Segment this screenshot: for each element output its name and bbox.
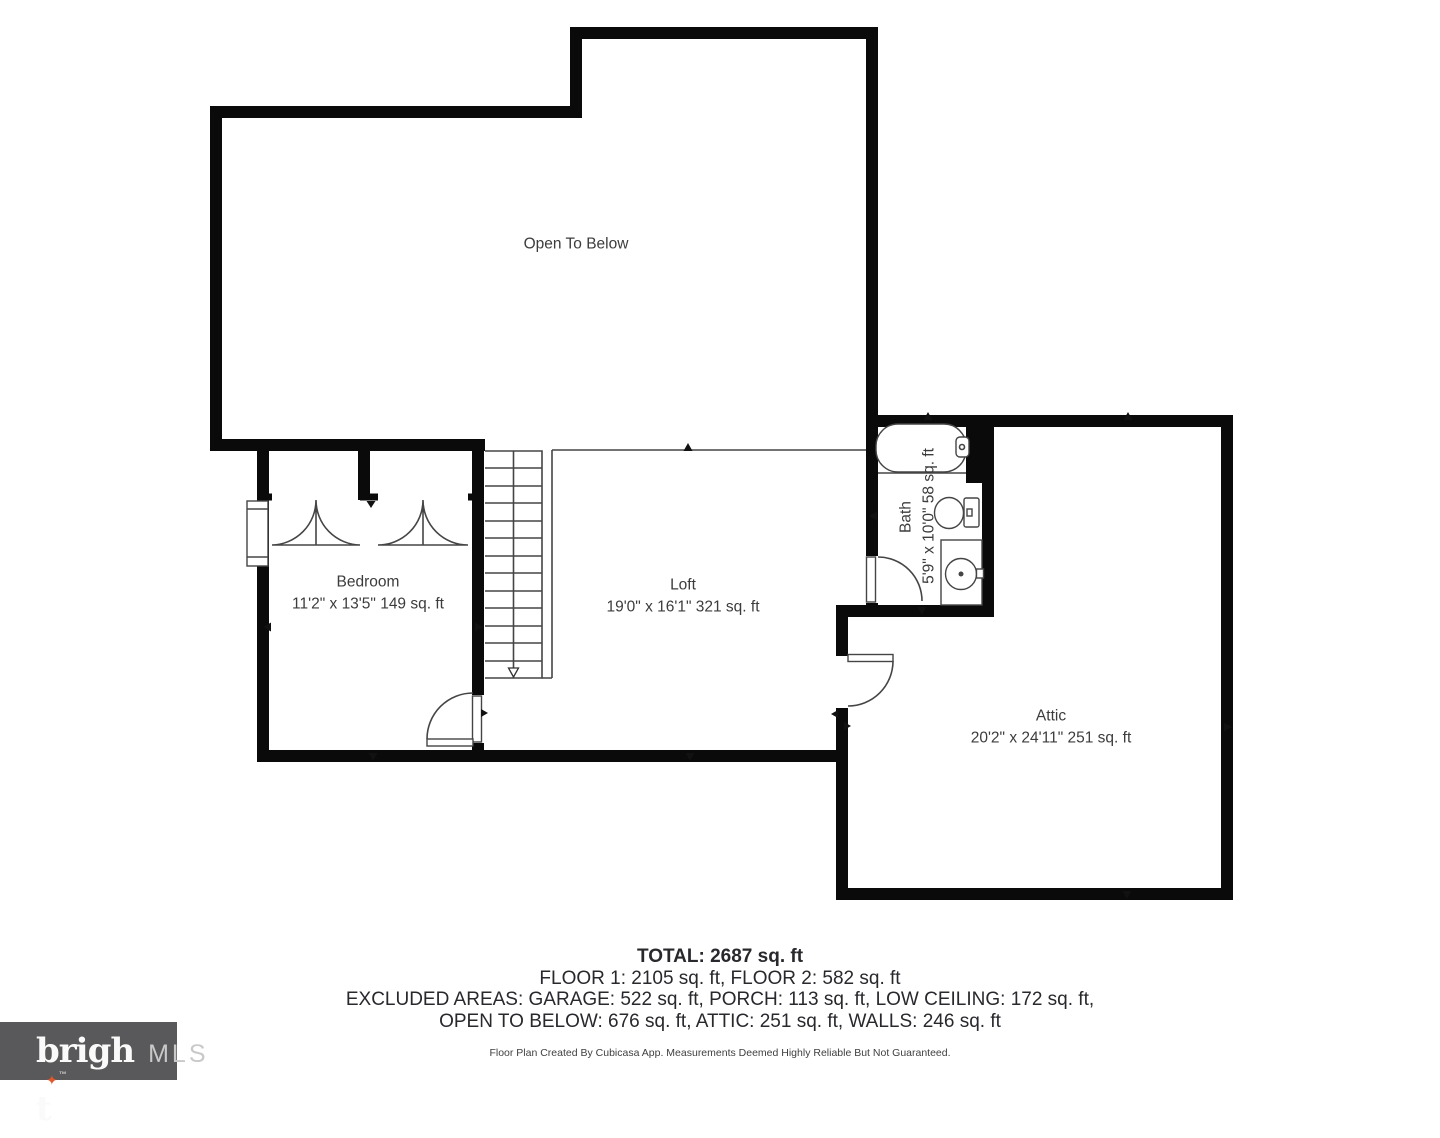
star-icon: ✦	[46, 1074, 58, 1088]
disclaimer-text: Floor Plan Created By Cubicasa App. Meas…	[0, 1047, 1440, 1059]
logo-suffix-text: MLS	[148, 1040, 208, 1069]
floor-plan-canvas: Open To Below Bedroom 11'2" x 13'5" 149 …	[0, 0, 1440, 1080]
arrow-down-icon	[367, 501, 376, 508]
closet-door-right-icon	[378, 500, 468, 545]
excluded-areas-text-line1: EXCLUDED AREAS: GARAGE: 522 sq. ft, PORC…	[0, 989, 1440, 1011]
walls	[210, 27, 1233, 900]
attic-door-opening	[834, 656, 848, 708]
bath-door-swing-icon	[878, 557, 922, 601]
bright-mls-logo: bright✦™ MLS	[0, 1022, 177, 1080]
bedroom-door-swing-icon	[427, 693, 473, 739]
bedroom-door-jamb	[473, 696, 482, 742]
attic-label: Attic	[1036, 708, 1066, 725]
room-labels: Open To Below Bedroom 11'2" x 13'5" 149 …	[292, 236, 1132, 747]
toilet-bowl-icon	[935, 498, 964, 529]
bath-label: Bath	[898, 501, 915, 533]
attic-door-leaf	[848, 655, 893, 662]
open-to-below-label: Open To Below	[524, 236, 630, 253]
logo-brand-text: bright✦™	[36, 1022, 134, 1138]
staircase	[485, 451, 542, 678]
floor-plan-page: { "page": {"background": "#ffffff"}, "fl…	[0, 0, 1440, 1080]
closet-doors-left	[272, 500, 360, 545]
total-area-text: TOTAL: 2687 sq. ft	[0, 946, 1440, 968]
bedroom-door-leaf	[427, 739, 473, 746]
bedroom-door	[427, 693, 486, 746]
area-summary: TOTAL: 2687 sq. ft FLOOR 1: 2105 sq. ft,…	[0, 946, 1440, 1059]
bedroom-label: Bedroom	[337, 574, 400, 591]
bath-door-leaf	[867, 557, 876, 602]
bedroom-dimensions: 11'2" x 13'5" 149 sq. ft	[292, 596, 445, 613]
attic-dimensions: 20'2" x 24'11" 251 sq. ft	[971, 730, 1132, 747]
bathtub-faucet-icon	[956, 437, 969, 457]
wall-arrows	[263, 412, 1232, 899]
trademark-symbol: ™	[59, 1071, 67, 1079]
bath-dimensions: 5'9" x 10'0" 58 sq. ft	[921, 447, 938, 584]
closet-doors-right	[378, 500, 468, 545]
closet-door-left-icon	[272, 500, 360, 545]
sink-faucet-icon	[977, 569, 984, 578]
bedroom-window	[247, 501, 268, 566]
sink-drain-icon	[959, 572, 964, 577]
floors-area-text: FLOOR 1: 2105 sq. ft, FLOOR 2: 582 sq. f…	[0, 968, 1440, 990]
arrow-left-icon	[831, 710, 838, 718]
attic-door	[834, 655, 893, 709]
bath-door	[864, 556, 922, 603]
toilet-flush-icon	[967, 509, 972, 516]
stairs-down-arrow-icon	[509, 668, 519, 677]
attic-door-swing-icon	[848, 661, 893, 706]
arrow-up-icon	[684, 443, 693, 451]
loft-label: Loft	[670, 577, 697, 594]
loft-boundary-line	[542, 450, 866, 678]
loft-dimensions: 19'0" x 16'1" 321 sq. ft	[606, 599, 760, 616]
excluded-areas-text-line2: OPEN TO BELOW: 676 sq. ft, ATTIC: 251 sq…	[0, 1011, 1440, 1033]
